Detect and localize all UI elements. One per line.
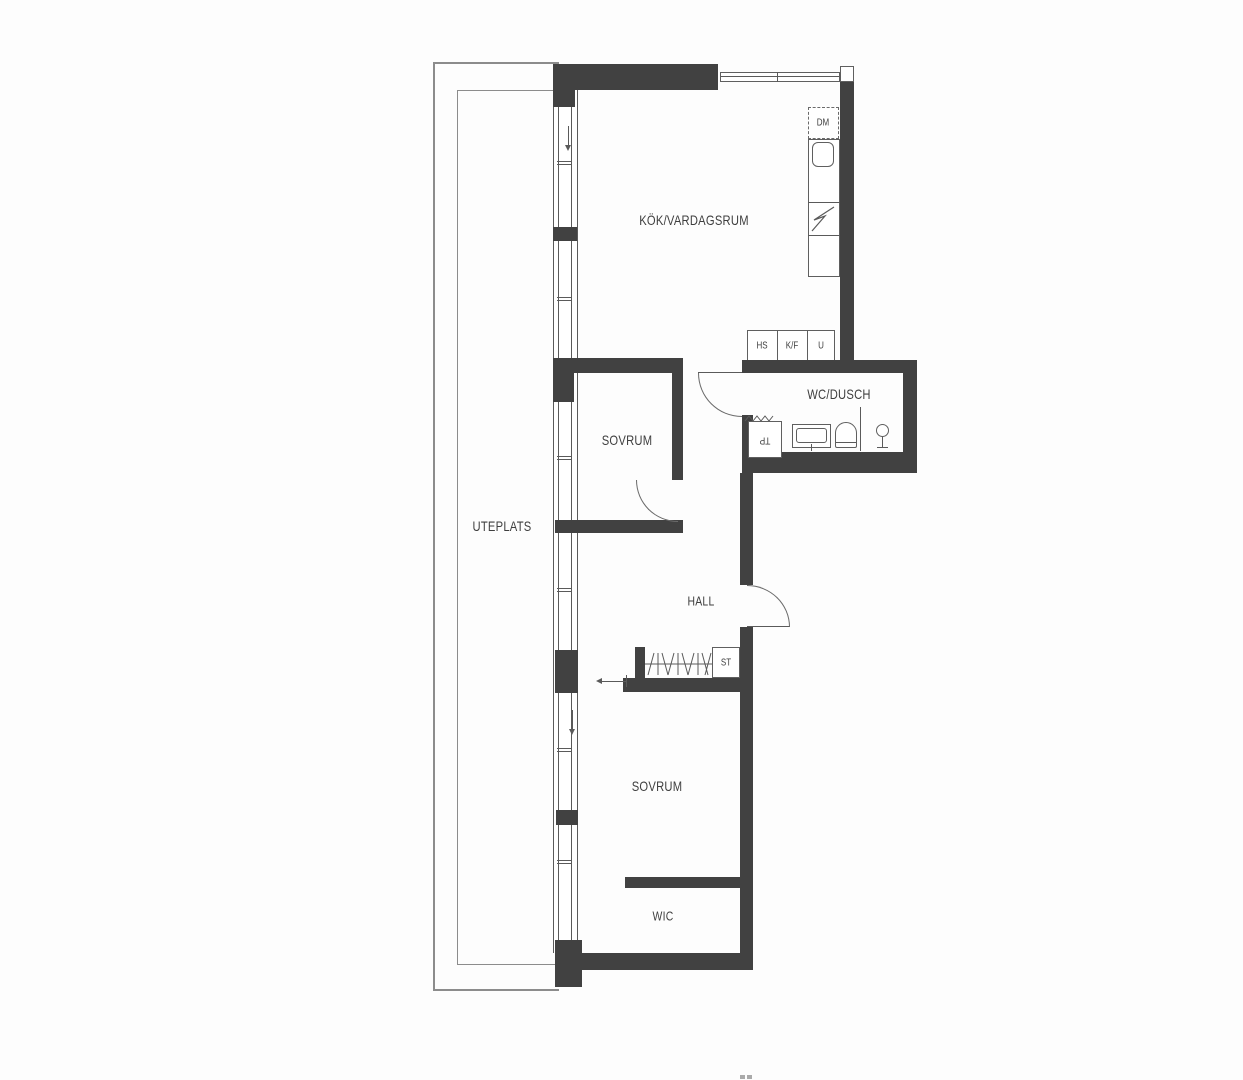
window-mullion <box>557 860 572 864</box>
washbasin-tap <box>811 444 812 451</box>
wall-wc-top <box>742 360 917 373</box>
wall-pillar-block <box>556 810 578 825</box>
window-mullion <box>557 161 572 165</box>
cabinet-label-hs: HS <box>756 341 767 352</box>
shower-foot <box>877 447 888 448</box>
wall-pillar-block <box>555 650 578 693</box>
arrow-left-icon <box>596 678 602 684</box>
floor-plan: UTEPLATS KÖK/VARDAGSRUM DM HS K/F U <box>0 0 1243 1080</box>
wc-door-arc <box>698 373 742 417</box>
laundry-label: TP <box>760 435 771 446</box>
kitchen-window-mullion <box>777 72 778 82</box>
wall-corner-notch <box>840 66 854 82</box>
shower-icon <box>876 424 889 437</box>
washbasin-bowl <box>796 428 827 443</box>
room-label-kitchen-living: KÖK/VARDAGSRUM <box>639 212 749 228</box>
room-label-wic: WIC <box>653 909 674 924</box>
cleaning-cabinet-label: ST <box>721 658 731 669</box>
wall-top <box>553 64 718 90</box>
room-label-patio: UTEPLATS <box>473 518 532 534</box>
arrow-down-icon <box>569 729 575 735</box>
window-mullion <box>557 456 572 460</box>
room-label-wc: WC/DUSCH <box>807 386 871 402</box>
toilet-base-line <box>836 442 856 443</box>
arrow-line <box>568 126 569 146</box>
wall-top-stub <box>553 90 575 107</box>
opening-arrow-tick <box>626 675 627 687</box>
toilet-icon <box>835 422 857 448</box>
cabinet-label-kf: K/F <box>786 341 798 352</box>
entrance-door-arc <box>747 585 790 627</box>
wall-bottom-corner-block <box>555 940 582 987</box>
bedroom1-door-arc <box>636 480 678 522</box>
coat-rail-icon <box>645 650 713 677</box>
scan-artifact <box>747 1075 752 1079</box>
kitchen-window-midline <box>721 76 839 77</box>
wall-bedroom1-bottom <box>555 520 683 533</box>
window-mullion <box>557 297 572 301</box>
wall-hall-right-lower <box>740 627 753 957</box>
wall-pillar-block <box>553 227 577 241</box>
stove-icon <box>808 203 840 235</box>
window-mullion <box>557 588 572 592</box>
kitchen-window <box>720 72 840 82</box>
wall-bedroom1-corner-block <box>553 358 574 402</box>
window-mullion <box>557 748 572 752</box>
wall-hall-right-upper <box>740 473 753 585</box>
scan-artifact <box>740 1075 745 1079</box>
room-label-bedroom-lower: SOVRUM <box>632 778 683 794</box>
wall-bedroom1-right <box>672 373 683 480</box>
wall-bottom <box>578 953 753 970</box>
room-label-bedroom-upper: SOVRUM <box>602 432 653 448</box>
shower-divider <box>860 407 861 451</box>
arrow-down-icon <box>565 145 571 151</box>
sink-icon <box>812 142 834 167</box>
window-line <box>553 88 554 953</box>
cabinet-label-u: U <box>818 341 824 352</box>
wall-right-kitchen <box>840 82 854 360</box>
arrow-line <box>572 710 573 730</box>
wall-hall-bottom <box>623 678 743 692</box>
wall-wic-separator <box>625 877 753 888</box>
opening-arrow-line <box>602 681 626 682</box>
appliance-label-dishwasher: DM <box>817 118 829 129</box>
room-label-hall: HALL <box>688 594 715 609</box>
counter-divider <box>808 235 840 236</box>
